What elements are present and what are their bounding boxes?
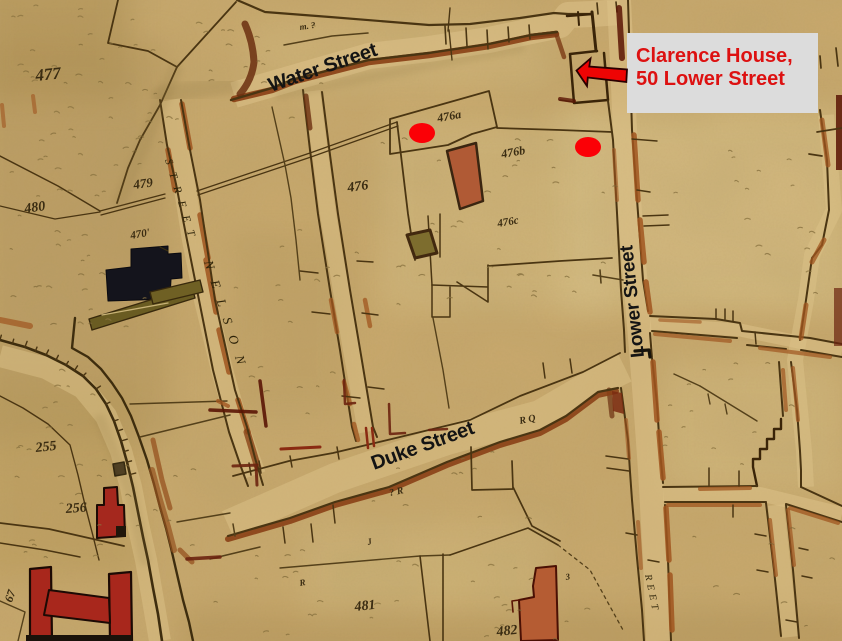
svg-text:479: 479 [131,174,154,192]
svg-text:476: 476 [345,178,369,196]
svg-text:480: 480 [22,199,46,217]
svg-text:50 Lower Street: 50 Lower Street [636,68,785,90]
svg-text:481: 481 [353,598,376,615]
svg-text:477: 477 [33,63,63,85]
svg-text:Clarence House,: Clarence House, [636,45,793,67]
svg-text:482: 482 [495,623,518,640]
svg-text:255: 255 [34,439,57,456]
svg-text:256: 256 [64,501,87,517]
